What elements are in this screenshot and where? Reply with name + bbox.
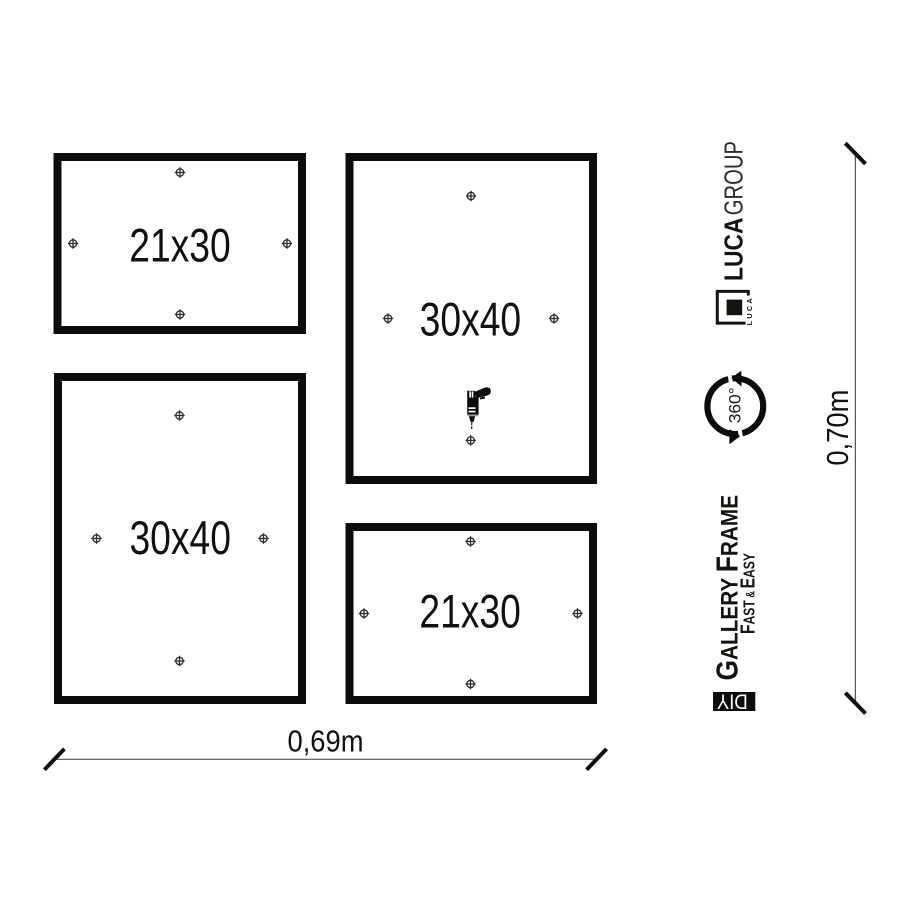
svg-text:0,70m: 0,70m: [821, 390, 855, 466]
svg-text:21x30: 21x30: [129, 219, 231, 272]
svg-text:LUCA: LUCA: [719, 218, 749, 282]
svg-text:DIY: DIY: [717, 689, 748, 712]
svg-text:30x40: 30x40: [129, 512, 231, 565]
svg-text:0,69m: 0,69m: [288, 725, 364, 759]
svg-text:21x30: 21x30: [419, 585, 521, 638]
svg-text:30x40: 30x40: [420, 294, 522, 347]
svg-text:360°: 360°: [725, 387, 744, 423]
svg-text:LUCA: LUCA: [745, 298, 754, 325]
svg-text:GROUP: GROUP: [719, 141, 749, 215]
